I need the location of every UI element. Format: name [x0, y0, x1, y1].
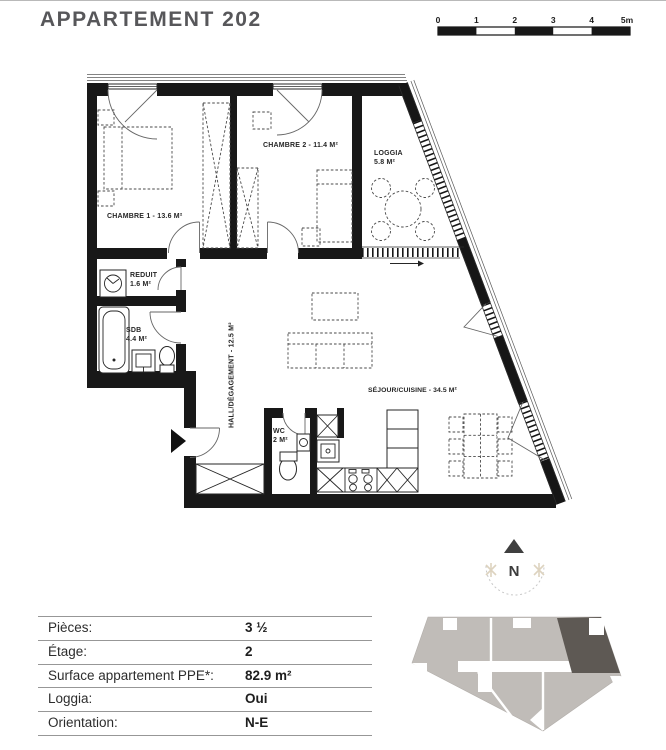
row-value: 3 ½ — [245, 617, 268, 640]
room-labels: CHAMBRE 1 - 13.6 M² CHAMBRE 2 - 11.4 M² … — [107, 142, 458, 444]
door-arc-reduit — [158, 267, 181, 290]
chair-icon — [416, 222, 435, 241]
dining-table-icon — [449, 414, 512, 478]
room-chambre1 — [98, 110, 172, 206]
chair-icon — [449, 439, 463, 454]
row-label: Surface appartement PPE*: — [48, 665, 214, 688]
casement-window-icon — [464, 304, 498, 337]
kitchen — [317, 410, 418, 492]
label-reduit: REDUIT — [130, 272, 158, 279]
scale-tick: 1 — [474, 15, 479, 25]
chair-icon — [372, 222, 391, 241]
window-strip — [417, 121, 461, 238]
row-label: Loggia: — [48, 688, 92, 711]
coffee-table-icon — [312, 293, 358, 320]
label-loggia-area: 5.8 M² — [374, 159, 396, 166]
oven-icon — [317, 440, 339, 462]
label-hall: HALL/DÉGAGEMENT - 12.5 M² — [227, 322, 236, 428]
sun-icon — [486, 563, 496, 577]
row-value: 2 — [245, 641, 253, 664]
nightstand-icon — [98, 191, 114, 206]
row-value: Oui — [245, 688, 268, 711]
scale-tick: 3 — [551, 15, 556, 25]
door-arc-chambre1 — [169, 222, 200, 253]
room-reduit — [100, 270, 126, 297]
table-row: Orientation: N-E — [38, 712, 372, 736]
scale-bar: 0 1 2 3 4 5m — [436, 15, 634, 35]
chair-icon — [449, 461, 463, 476]
scale-seg — [438, 27, 476, 35]
round-table-icon — [385, 191, 421, 227]
scale-tick: 0 — [436, 15, 441, 25]
window-strip — [523, 402, 545, 460]
building-locator — [412, 617, 621, 731]
scale-tick: 4 — [589, 15, 594, 25]
bed-icon — [317, 170, 352, 242]
sofa-icon — [288, 333, 372, 368]
kitchen-counter — [317, 468, 418, 492]
chair-icon — [449, 417, 463, 432]
north-arrow-icon — [504, 539, 524, 553]
chair-icon — [498, 461, 512, 476]
label-wc: WC — [273, 428, 285, 435]
slide-arrow-icon — [418, 261, 424, 267]
label-reduit-area: 1.6 M² — [130, 281, 152, 288]
label-wc-area: 2 M² — [273, 437, 288, 444]
north-label: N — [509, 563, 520, 580]
window-strip — [486, 304, 498, 337]
door-arc-wc — [283, 413, 305, 435]
corridor — [458, 661, 574, 672]
table-row: Pièces: 3 ½ — [38, 617, 372, 641]
chair-icon — [498, 417, 512, 432]
chair-icon — [416, 179, 435, 198]
label-sdb-area: 4.4 M² — [126, 336, 148, 343]
door-arc-entrance — [190, 428, 220, 458]
scale-seg — [515, 27, 553, 35]
entrance-arrow-icon — [171, 429, 186, 453]
door-arc-sdb — [150, 312, 181, 343]
apartment-details-table: Pièces: 3 ½ Étage: 2 Surface appartement… — [38, 616, 372, 736]
table-row: Surface appartement PPE*: 82.9 m² — [38, 665, 372, 689]
table-row: Étage: 2 — [38, 641, 372, 665]
label-loggia: LOGGIA — [374, 150, 403, 157]
compass: N — [486, 539, 544, 595]
door-arc-chambre2 — [268, 222, 299, 253]
bed-icon — [104, 127, 172, 189]
room-loggia — [372, 179, 435, 241]
toilet-icon — [160, 347, 175, 366]
chair-icon — [498, 439, 512, 454]
scale-tick: 5m — [621, 15, 634, 25]
nightstand-icon — [98, 110, 114, 125]
row-value: 82.9 m² — [245, 665, 292, 688]
sun-icon — [534, 563, 544, 577]
label-sdb: SDB — [126, 327, 141, 334]
casement-window-icon — [508, 402, 545, 460]
label-sejour: SÉJOUR/CUISINE - 34.5 M² — [368, 385, 458, 394]
scale-seg — [592, 27, 630, 35]
row-label: Pièces: — [48, 617, 92, 640]
tall-cabinet-icon — [387, 410, 418, 468]
row-label: Étage: — [48, 641, 87, 664]
scale-tick: 2 — [512, 15, 517, 25]
chair-icon — [372, 179, 391, 198]
row-label: Orientation: — [48, 712, 118, 735]
row-value: N-E — [245, 712, 268, 735]
nightstand-icon — [253, 112, 271, 129]
label-chambre1: CHAMBRE 1 - 13.6 M² — [107, 213, 183, 220]
hall-closet — [196, 464, 264, 494]
label-chambre2: CHAMBRE 2 - 11.4 M² — [263, 142, 338, 149]
floorplan-page: APPARTEMENT 202 0 1 2 3 4 5m — [0, 0, 666, 750]
sink-icon — [297, 434, 310, 451]
table-row: Loggia: Oui — [38, 688, 372, 712]
loggia-window — [362, 247, 464, 267]
